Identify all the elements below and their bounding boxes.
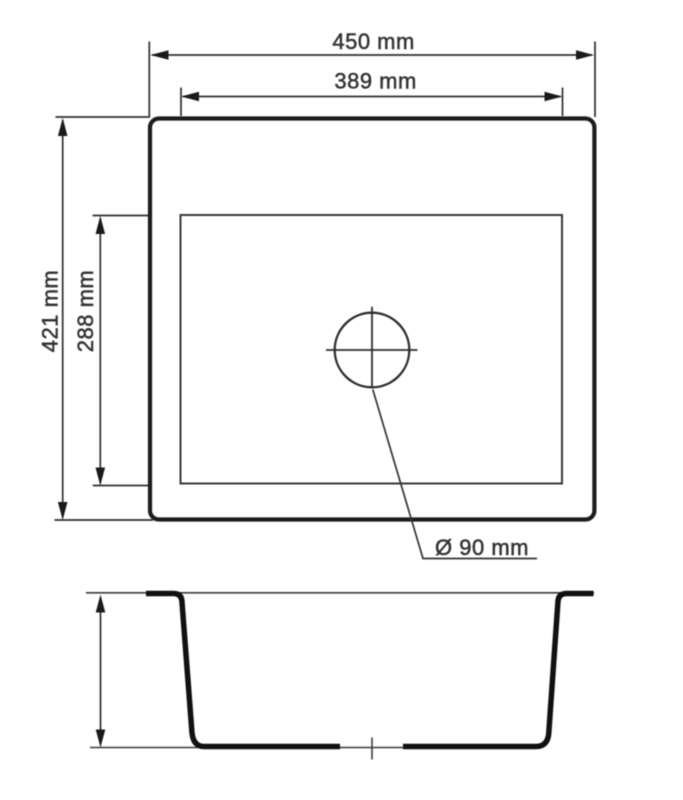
svg-text:389 mm: 389 mm <box>334 69 416 94</box>
svg-text:421 mm: 421 mm <box>37 270 62 352</box>
svg-text:288 mm: 288 mm <box>73 270 98 352</box>
svg-text:Ø 90 mm: Ø 90 mm <box>435 535 529 560</box>
svg-text:450 mm: 450 mm <box>332 29 414 54</box>
